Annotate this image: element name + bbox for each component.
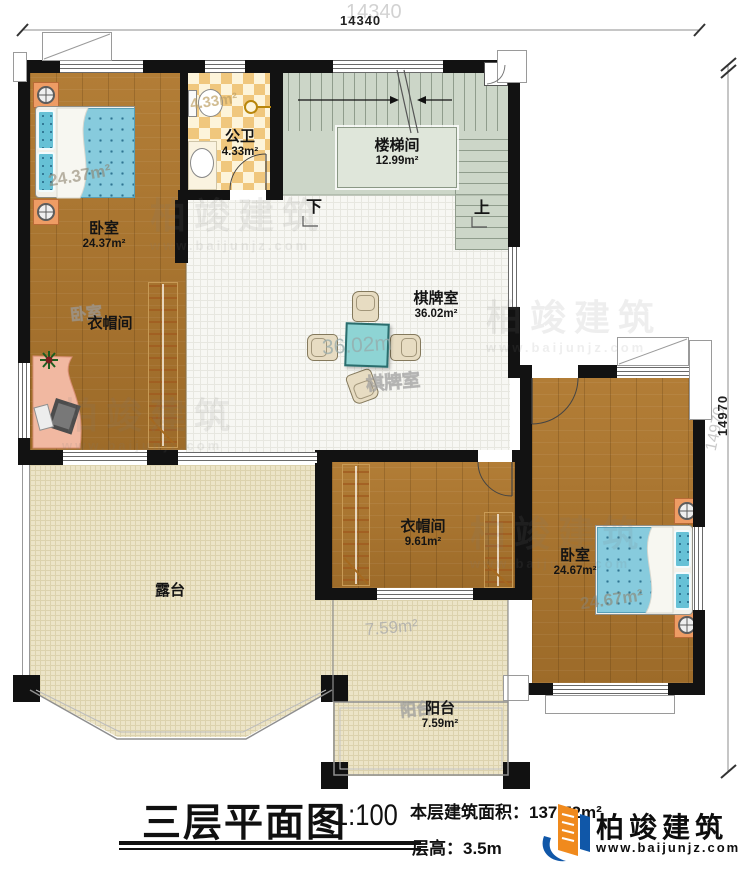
room-label-bathroom: 公卫 4.33m² — [222, 128, 258, 160]
title-underline-thin — [119, 848, 421, 850]
pillow — [674, 530, 691, 568]
wall — [178, 190, 230, 200]
exterior-ledge — [13, 52, 27, 82]
floor-height-label: 层高： — [412, 839, 463, 858]
room-area: 24.37m² — [83, 238, 126, 252]
room-name: 卧室 — [554, 547, 597, 565]
wardrobe-left-cloakroom — [148, 282, 178, 448]
pillar — [321, 675, 348, 702]
door-opening — [478, 450, 512, 462]
window — [508, 247, 520, 307]
room-label-cloakroom-left: 衣帽间 — [87, 315, 132, 333]
room-area: 12.99m² — [374, 155, 419, 169]
plan-scale: 1:100 — [334, 799, 398, 833]
window-sill — [545, 695, 675, 714]
wall — [18, 73, 30, 363]
door-opening — [230, 190, 266, 200]
sliding-door — [178, 452, 317, 463]
stair-up-label: 上 — [474, 194, 490, 218]
exterior-ledge — [689, 340, 712, 420]
window — [205, 60, 245, 73]
window — [18, 363, 30, 438]
floor-height-value: 3.5m — [463, 839, 502, 858]
wall — [508, 60, 520, 247]
floor-area-label: 本层建筑面积： — [410, 803, 529, 822]
lamp-icon — [37, 86, 55, 104]
floor-balcony-strip — [332, 600, 508, 690]
bay-window-right — [617, 337, 689, 366]
wall — [315, 450, 332, 600]
plan-title: 三层平面图 — [142, 792, 347, 848]
wardrobe-cloakroom-right — [484, 512, 513, 588]
stair-treads-upper — [288, 73, 508, 131]
pillar — [321, 762, 348, 789]
room-name: 衣帽间 — [87, 315, 132, 333]
wall — [520, 378, 532, 450]
wall — [266, 190, 283, 200]
wall — [520, 365, 532, 378]
window — [333, 60, 443, 73]
window — [617, 367, 692, 377]
sink-icon — [190, 148, 214, 178]
room-area: 36.02m² — [413, 308, 458, 322]
wall — [578, 365, 617, 378]
pillar — [503, 762, 530, 789]
wall — [515, 462, 532, 600]
floor-terrace — [30, 465, 332, 690]
door-opening — [532, 365, 578, 378]
room-area: 9.61m² — [400, 536, 445, 550]
wall — [332, 450, 478, 462]
pillar — [13, 675, 40, 702]
ghost-chess-name: 棋牌室 — [365, 366, 421, 397]
room-label-stairwell: 楼梯间 12.99m² — [374, 137, 419, 169]
window — [553, 685, 668, 694]
wall — [512, 450, 532, 462]
wardrobe-cloakroom-left — [342, 464, 370, 586]
room-label-cloakroom-bottom: 衣帽间 9.61m² — [400, 518, 445, 550]
room-area: 4.33m² — [222, 146, 258, 160]
room-area: 24.67m² — [554, 565, 597, 579]
floor-plan-canvas: 柏竣建筑 www.baijunjz.com 柏竣建筑 www.baijunjz.… — [0, 0, 750, 871]
window — [60, 60, 143, 73]
room-area: 7.59m² — [422, 718, 458, 732]
room-label-terrace: 露台 — [155, 582, 185, 600]
room-name: 衣帽间 — [400, 518, 445, 536]
dimension-right: 14970 — [715, 395, 730, 436]
wall — [270, 73, 283, 195]
bay-window-top-left — [42, 32, 112, 61]
room-name: 棋牌室 — [413, 290, 458, 308]
room-name: 卧室 — [83, 220, 126, 238]
wall — [315, 588, 377, 600]
wall — [245, 60, 333, 73]
room-name: 楼梯间 — [374, 137, 419, 155]
chair — [390, 334, 421, 361]
flue-top-right — [497, 50, 527, 83]
ghost-chess-area: 36.02m — [321, 332, 393, 361]
brand-url: www.baijunjz.com — [596, 840, 740, 855]
wall — [175, 200, 188, 263]
wall — [668, 683, 705, 695]
room-name: 露台 — [155, 582, 185, 600]
window-sill — [503, 675, 529, 701]
nightstand — [33, 199, 59, 225]
lamp-icon — [37, 203, 55, 221]
window — [63, 452, 147, 464]
floor-area-value: 137.72m² — [529, 803, 602, 822]
chair — [352, 291, 379, 322]
room-label-chess-room: 棋牌室 36.02m² — [413, 290, 458, 322]
wall — [147, 450, 178, 465]
room-name: 公卫 — [222, 128, 258, 146]
room-label-balcony: 阳台 7.59m² — [422, 700, 458, 732]
wall — [180, 73, 188, 193]
floor-area-text: 本层建筑面积：137.72m² — [410, 798, 602, 823]
wall — [18, 450, 63, 465]
pillow — [674, 572, 691, 610]
room-name: 阳台 — [422, 700, 458, 718]
stair-down-label: 下 — [306, 193, 322, 217]
floor-terrace-bay — [30, 690, 332, 739]
nightstand — [33, 82, 59, 108]
pillow — [37, 110, 55, 150]
stair-treads-right-flight — [455, 131, 508, 250]
floor-height-text: 层高：3.5m — [412, 834, 502, 859]
window — [694, 527, 704, 610]
room-label-bedroom-right: 卧室 24.67m² — [554, 547, 597, 579]
room-label-bedroom-left: 卧室 24.37m² — [83, 220, 126, 252]
wall — [143, 60, 205, 73]
wall — [473, 588, 532, 600]
terrace-left-railing — [22, 465, 30, 690]
title-underline — [119, 841, 421, 845]
dimension-top: 14340 — [340, 13, 381, 28]
wall — [508, 307, 520, 378]
sliding-door — [377, 590, 473, 599]
